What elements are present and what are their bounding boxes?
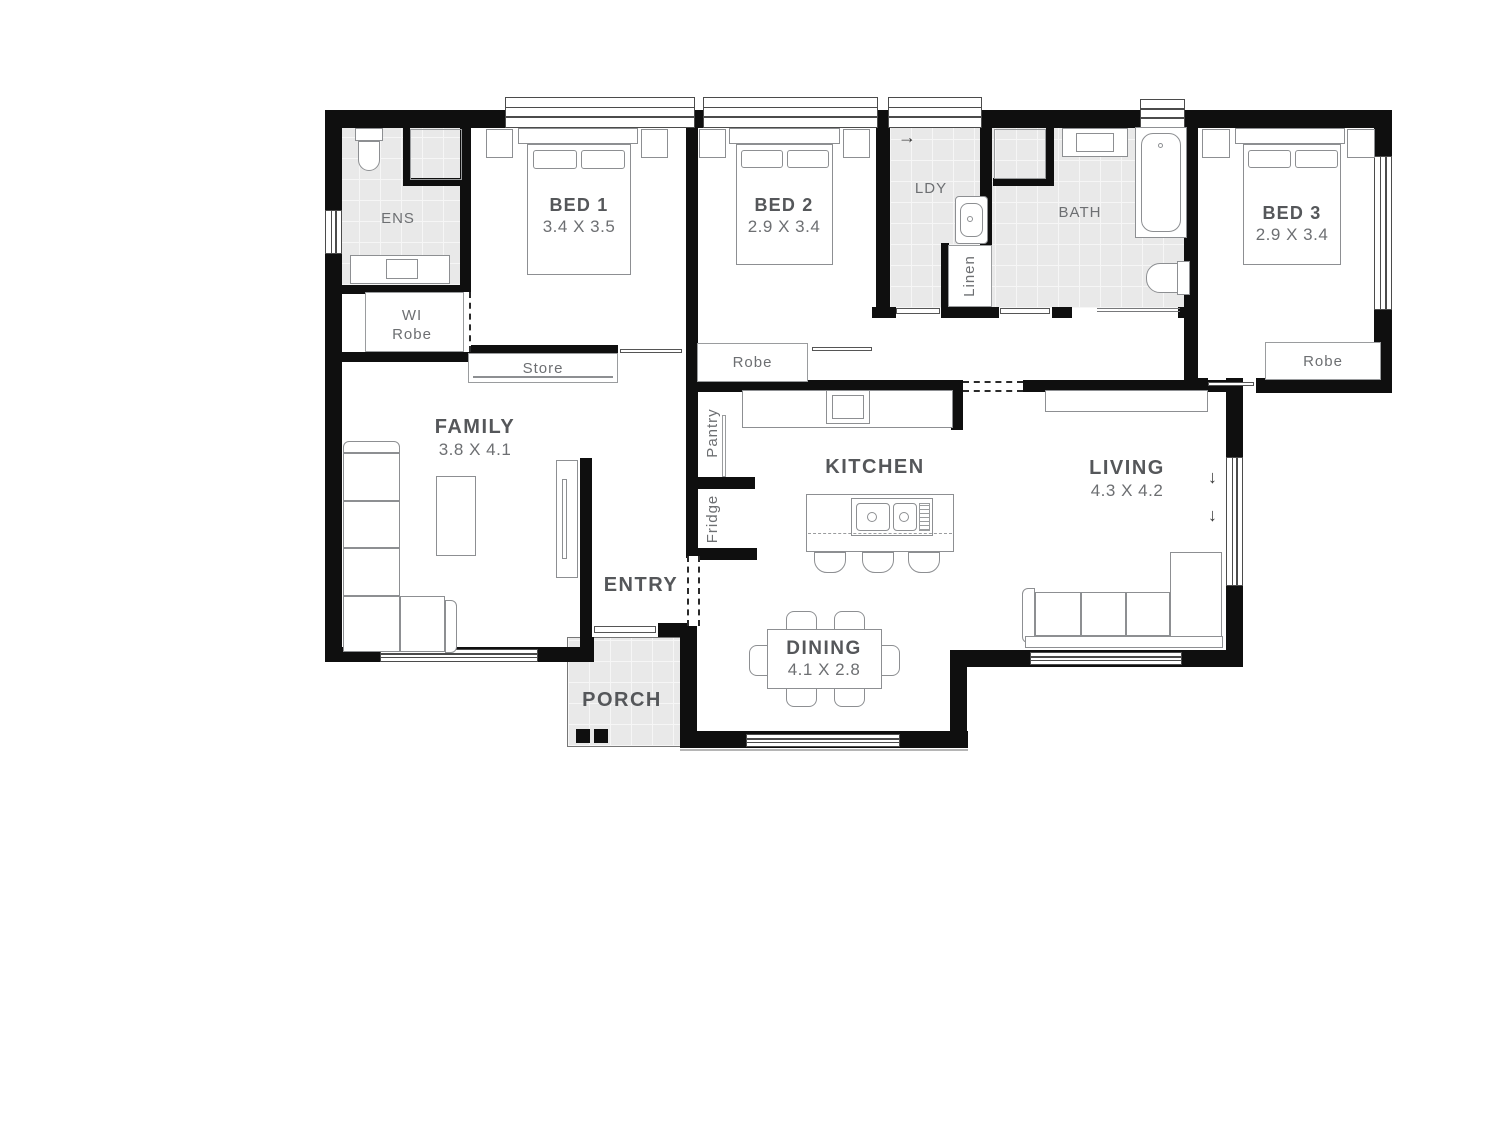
sofa-seats	[1035, 592, 1170, 636]
tap-dot	[967, 216, 973, 222]
wall-segment	[1256, 378, 1392, 393]
room-label-family: FAMILY	[395, 415, 555, 439]
pillow	[533, 150, 577, 169]
bedside-table	[1202, 129, 1230, 158]
pillow	[1248, 150, 1291, 168]
pillow	[741, 150, 783, 168]
sofa-chaise	[1170, 552, 1222, 637]
room-label-dining: DINING	[764, 637, 884, 661]
pillow	[787, 150, 829, 168]
window	[1140, 99, 1185, 128]
room-label-pantry: Pantry	[703, 388, 721, 478]
room-label-store: Store	[483, 359, 603, 378]
window	[325, 210, 342, 254]
sofa-arm	[1022, 588, 1035, 643]
porch-post	[576, 729, 590, 743]
sofa-arm	[445, 600, 457, 653]
wall-segment	[872, 307, 896, 318]
room-dims-family: 3.8 X 4.1	[395, 440, 555, 460]
window	[1030, 652, 1182, 665]
toilet-tank	[355, 128, 383, 141]
room-label-bath: BATH	[1040, 203, 1120, 222]
toilet-bowl	[358, 141, 380, 171]
wall-segment	[680, 623, 697, 735]
room-label-robe-bed2: Robe	[697, 353, 808, 372]
wall-segment	[876, 128, 890, 318]
stool	[814, 552, 846, 573]
room-label-robe-bed3: Robe	[1265, 352, 1381, 371]
wall-segment	[1226, 378, 1243, 457]
wall-segment	[950, 660, 967, 735]
dining-chair	[786, 688, 817, 707]
bedside-table	[699, 129, 726, 158]
wall-segment	[580, 458, 592, 662]
wall-segment	[1178, 307, 1198, 318]
sofa-cushion-line	[344, 500, 399, 502]
bedside-table	[1347, 129, 1375, 158]
room-label-bed3: BED 3	[1232, 202, 1352, 224]
window	[746, 734, 900, 747]
sofa-arm	[343, 441, 400, 453]
room-label-bed2: BED 2	[724, 194, 844, 216]
room-label-entry: ENTRY	[581, 573, 701, 597]
tap-dot	[1158, 143, 1163, 148]
shower-screen	[410, 129, 462, 180]
room-label-ens: ENS	[358, 209, 438, 228]
sofa-cushion-line	[344, 547, 399, 549]
wall-segment	[993, 178, 1054, 186]
tv-unit	[556, 460, 578, 578]
towel-rail	[1097, 308, 1180, 312]
bedside-table	[843, 129, 870, 158]
wi-robe-line1: WI	[402, 307, 422, 324]
bedhead	[518, 128, 638, 144]
room-label-wi-robe: WI Robe	[368, 306, 456, 344]
room-label-linen: Linen	[960, 231, 978, 321]
sofa-corner	[343, 596, 400, 652]
dashed-opening	[963, 381, 1023, 392]
bed1-door-leaf	[620, 349, 682, 353]
wall-segment	[1052, 307, 1072, 318]
tv-screen	[562, 479, 567, 559]
sofa-cushion-line	[1125, 593, 1127, 635]
dining-chair	[786, 611, 817, 630]
entry-door-leaf	[594, 626, 656, 633]
exterior-sill-line	[680, 749, 968, 751]
window	[703, 97, 878, 128]
room-dims-bed3: 2.9 X 3.4	[1232, 225, 1352, 245]
window-slide-arrow: ↓	[1208, 506, 1217, 524]
window	[505, 97, 695, 128]
room-label-ldy: LDY	[896, 179, 966, 198]
sink-drain-dot	[899, 512, 909, 522]
laundry-door-leaf	[896, 308, 940, 314]
room-label-fridge: Fridge	[703, 474, 721, 564]
room-dims-bed1: 3.4 X 3.5	[519, 217, 639, 237]
cooktop-inner	[832, 395, 864, 419]
bed2-door-leaf	[812, 347, 872, 351]
pantry-door-line	[722, 415, 726, 477]
bed3-door-leaf	[1208, 382, 1254, 386]
floor-plan: → ↓ ↓ ENS WI Robe BED 1 3.4 X 3.5 Store …	[0, 0, 1498, 1145]
coffee-table	[436, 476, 476, 556]
sliding-door-arrow: →	[898, 128, 916, 146]
sink-drain-dot	[867, 512, 877, 522]
sofa-cushion-line	[1080, 593, 1082, 635]
toilet-bowl	[1146, 263, 1178, 293]
dining-chair	[834, 611, 865, 630]
room-label-porch: PORCH	[562, 688, 682, 712]
wall-segment	[325, 110, 342, 662]
stool	[862, 552, 894, 573]
vanity-basin	[386, 259, 418, 279]
room-dims-dining: 4.1 X 2.8	[764, 660, 884, 680]
sofa-back	[1025, 636, 1223, 648]
bedhead	[1235, 128, 1345, 144]
shower-screen	[994, 129, 1046, 179]
pillow	[1295, 150, 1338, 168]
room-label-kitchen: KITCHEN	[795, 455, 955, 479]
bedside-table	[641, 129, 668, 158]
window	[1374, 156, 1392, 310]
vanity-basin	[1076, 133, 1114, 152]
toilet-tank	[1177, 261, 1190, 295]
window	[1226, 457, 1243, 586]
sofa	[343, 453, 400, 596]
wall-segment	[338, 352, 468, 362]
bath-door-leaf	[1000, 308, 1050, 314]
porch-post	[594, 729, 608, 743]
stool	[908, 552, 940, 573]
pillow	[581, 150, 625, 169]
island-overhang-line	[808, 533, 952, 534]
window-slide-arrow: ↓	[1208, 468, 1217, 486]
sink-drainer	[919, 503, 930, 531]
wi-robe-line2: Robe	[392, 326, 432, 343]
tv-unit	[1045, 390, 1208, 412]
bedhead	[729, 128, 840, 144]
dining-chair	[834, 688, 865, 707]
wall-segment	[1184, 310, 1198, 380]
room-dims-living: 4.3 X 4.2	[1047, 481, 1207, 501]
room-label-living: LIVING	[1047, 456, 1207, 480]
sofa-seat	[400, 596, 445, 652]
bedside-table	[486, 129, 513, 158]
sliding-door	[888, 97, 982, 128]
room-dims-bed2: 2.9 X 3.4	[724, 217, 844, 237]
room-label-bed1: BED 1	[519, 194, 639, 216]
